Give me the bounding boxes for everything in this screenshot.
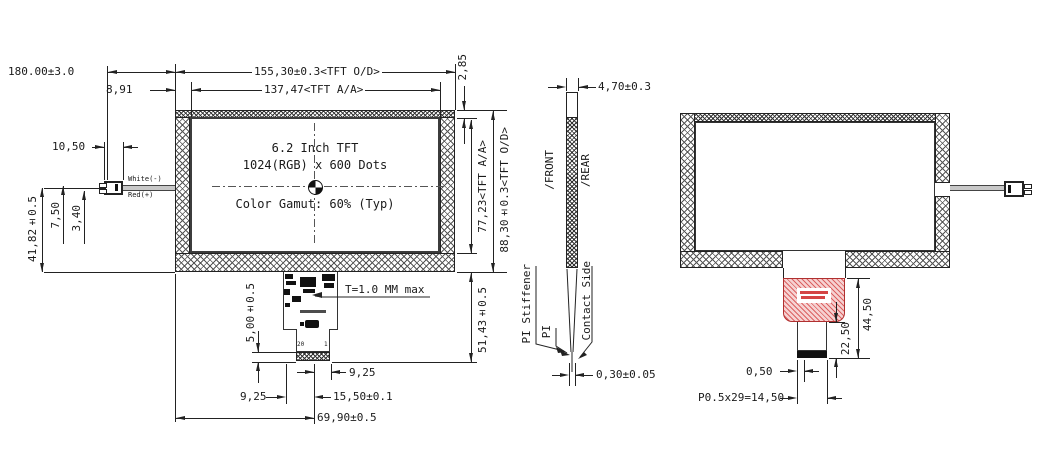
dim-thickness: 4,70±0.3 [598,80,651,93]
fpc-component [285,274,293,279]
centerline-horizontal [212,186,444,187]
arrow [256,362,260,371]
ext-line [457,253,477,254]
dim-wire-pos: 41,82±0.5 [26,196,39,262]
dim-line [323,397,331,398]
rear-inner-area [695,122,935,251]
dim-edge-offset: 0,50 [746,365,773,378]
arrow [856,349,860,358]
dim-pitch: P0.5x29=14,50 [698,391,784,404]
fpc-part-number-text [300,310,326,313]
arrow [95,145,104,149]
arrow [462,119,466,128]
arrow [176,416,185,420]
arrow [40,188,44,197]
arrow [256,343,260,352]
dim-line [493,111,494,272]
dim-aa-height: 77,23<TFT A/A> [476,140,489,233]
dim-line [108,72,175,73]
rear-bottom-border-left [680,251,783,268]
panel-left-border [175,117,190,254]
arrow [469,273,473,282]
fpc-component [303,289,315,293]
dim-fpc-right: 9,25 [349,366,376,379]
dim-od-width: 155,30±0.3<TFT O/D> [252,65,382,78]
arrow [827,396,836,400]
ext-line [44,272,175,273]
connector-pin [99,189,107,194]
arrow [856,279,860,288]
fpc-hotbar-label-text [801,296,825,299]
dim-fpc-left: 9,25 [240,390,267,403]
arrow [469,120,473,129]
arrow [305,370,314,374]
fpc-component [292,296,301,302]
connector-detail [115,184,118,191]
ext-line [457,118,477,119]
arrow [469,244,473,253]
dim-line [858,279,859,358]
lcd-outline-drawing: 6.2 Inch TFT 1024(RGB) x 600 Dots Color … [0,0,1048,466]
ext-line [44,188,104,189]
fpc-component [324,283,334,288]
label-front-side: /FRONT [543,150,556,190]
label-pi-stiffener: PI Stiffener [520,264,533,343]
fpc-contact-strip [296,352,330,361]
dim-top-margin: 2,85 [456,54,469,81]
ext-line [286,364,287,404]
dim-wire-gap-outer: 7,50 [49,202,62,229]
dim-line [42,188,43,272]
fpc-logo-mark [300,322,304,326]
arrow [834,358,838,367]
ext-line [566,78,567,91]
rear-bottom-border-right [845,251,950,268]
center-mark-icon [308,180,323,195]
arrow [166,70,175,74]
dim-stiffener-len: 5,00±0.5 [244,283,257,342]
connector-pin [1024,190,1032,195]
arrow [491,263,495,272]
arrow [82,191,86,200]
fpc-hotbar-label-text [800,291,828,294]
arrow [314,395,323,399]
arrow [305,416,314,420]
dim-od-height: 88,30±0.3<TFT O/D> [498,127,511,253]
fpc-component [322,274,335,281]
label-pi: PI [540,325,553,338]
ext-line [457,272,507,273]
ext-line [104,142,105,180]
dim-line [471,120,472,253]
dim-line [780,371,788,372]
arrow [469,353,473,362]
backlight-wire-rear [950,185,1005,191]
dim-line [176,418,314,419]
fpc-pin-label-20: 20 [297,341,304,348]
dim-fpc-center: 69,90±0.5 [317,411,377,424]
arrow [788,396,797,400]
dim-pi-thickness: 0,30±0.05 [596,368,656,381]
fpc-component [286,281,296,285]
ext-line [332,362,477,363]
panel-spec-line1: 6.2 Inch TFT [190,142,440,155]
panel-spec-line3: Color Gamut: 60% (Typ) [190,198,440,211]
fpc-passthrough-edge [783,268,784,278]
connector-detail [1008,185,1011,193]
wire-label-red: Red(+) [128,191,153,199]
connector-pin [1024,184,1032,189]
label-rear-side: /REAR [579,154,592,187]
wire-label-white: White(-) [128,175,162,183]
dim-aa-width: 137,47<TFT A/A> [262,83,365,96]
arrow [788,369,797,373]
ext-line [252,352,296,353]
ext-line [440,82,441,117]
ext-line [797,360,798,404]
arrow [192,88,201,92]
dim-fpc-drop: 51,43±0.5 [476,287,489,353]
dim-line [552,375,560,376]
arrow [123,145,132,149]
arrow [575,373,584,377]
dim-tail-length: 22,50 [839,322,852,355]
arrow [462,101,466,110]
arrow [804,369,813,373]
arrow [834,313,838,322]
dim-left-margin: 8,91 [106,83,133,96]
fpc-passthrough-edge [845,268,846,278]
fpc-component [300,277,316,287]
dim-contact-width: 15,50±0.1 [333,390,393,403]
label-contact-side: Contact Side [580,261,593,340]
dim-connector-length: 10,50 [52,140,85,153]
side-view-top-segment [566,92,578,118]
arrow [331,370,340,374]
arrow [108,70,117,74]
arrow [560,373,569,377]
arrow [491,111,495,120]
ext-line [175,274,176,422]
wire-connector-rear [1004,181,1024,197]
arrow [166,88,175,92]
arrow [431,88,440,92]
panel-bottom-border [175,253,455,272]
dim-wire-length: 180.00±3.0 [8,65,74,78]
dim-line [266,397,277,398]
ext-line [457,110,507,111]
arrow [557,85,566,89]
arrow [579,85,588,89]
fpc-component [284,289,290,295]
arrow [446,70,455,74]
fpc-logo [305,320,319,328]
dim-fpc-length: 44,50 [861,298,874,331]
arrow [61,186,65,195]
fpc-thickness-note: T=1.0 MM max [345,283,424,296]
rear-right-border-upper [935,113,950,183]
ext-line [569,363,570,386]
arrow [40,263,44,272]
dim-line [471,273,472,362]
fpc-component [285,303,290,307]
side-view-body [566,117,578,268]
arrow [176,70,185,74]
fpc-pin-label-1: 1 [324,341,328,348]
arrow [277,395,286,399]
fpc-contact-bar [797,351,827,358]
dim-wire-gap-inner: 3,40 [70,205,83,232]
rear-top-border [680,113,950,122]
rear-left-border [680,113,695,268]
fpc-tail [797,322,827,351]
panel-spec-line2: 1024(RGB) x 600 Dots [190,159,440,172]
